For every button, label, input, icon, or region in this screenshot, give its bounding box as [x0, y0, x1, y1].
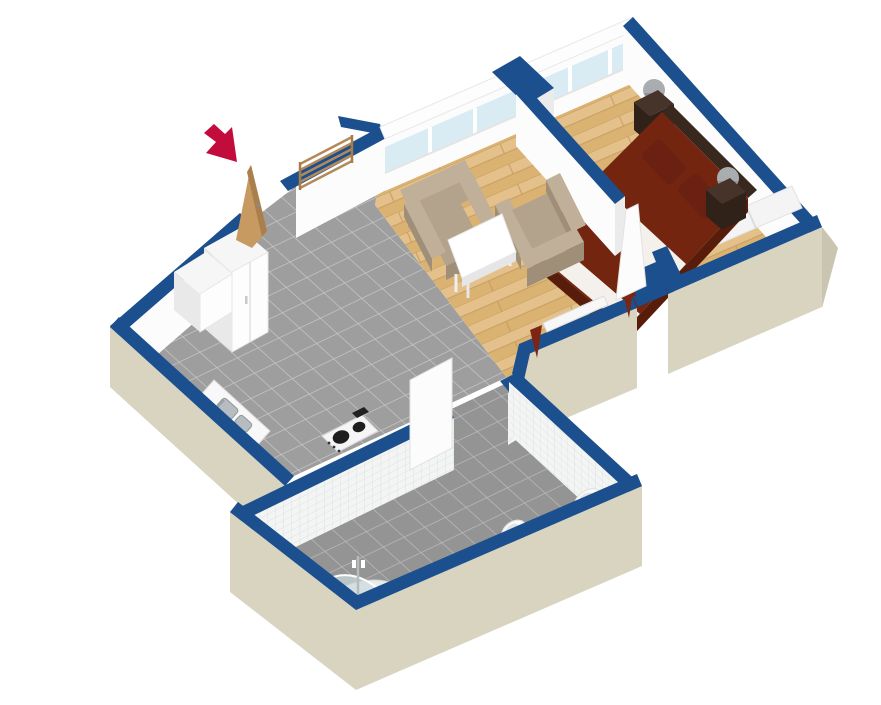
wall-corner-face	[822, 227, 838, 308]
stove-knob	[328, 442, 331, 445]
floor-plan-canvas	[0, 0, 881, 705]
stove-knob	[333, 446, 336, 449]
shower-handle	[361, 560, 365, 568]
tall-cabinet-handle	[245, 296, 248, 304]
stove-knob	[338, 450, 341, 453]
wall-top-notch	[338, 116, 383, 135]
entrance-arrow	[204, 124, 237, 162]
shower-handle	[352, 560, 356, 568]
floor-plan-render	[0, 0, 881, 705]
entrance-door-handle	[256, 203, 260, 207]
